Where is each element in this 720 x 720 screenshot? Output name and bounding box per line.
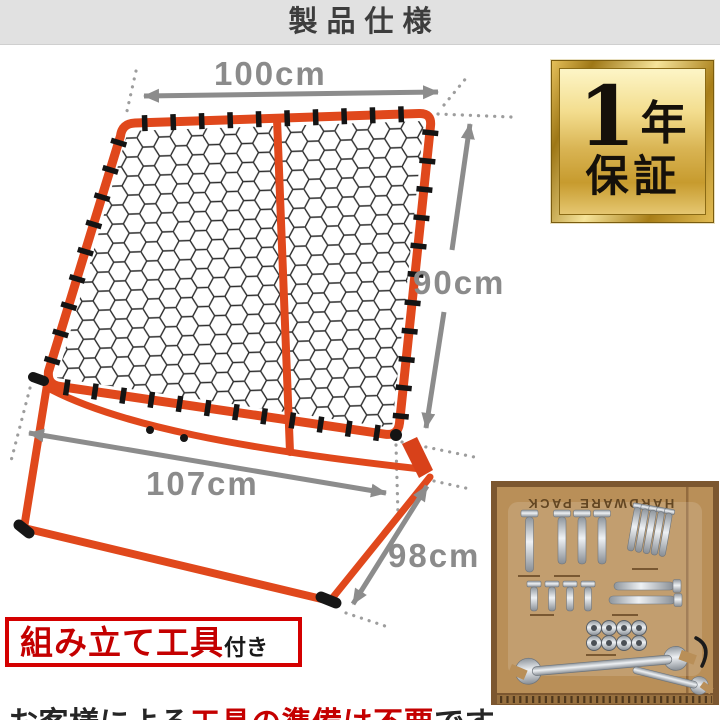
assembly-tools-text: 組み立て工具 <box>20 626 224 659</box>
arrow-height-upper <box>452 124 470 250</box>
dimension-label-depth: 98cm <box>388 539 480 572</box>
assembly-tools-suffix: 付き <box>224 637 268 659</box>
warranty-label: 保証 <box>584 156 682 199</box>
dimension-label-bottom-width: 107cm <box>146 467 259 500</box>
dimension-label-top-width: 100cm <box>214 57 327 90</box>
tools-note-sentence: お客様による工具の準備は不要です。 <box>8 706 523 720</box>
arrow-top-width <box>144 92 438 96</box>
warranty-badge-panel: 1 年 保証 <box>559 68 706 215</box>
hinge-bracket <box>402 437 433 478</box>
bolt-knob <box>146 426 154 434</box>
note-highlight: 工具の準備は不要 <box>190 707 434 720</box>
warranty-number: 1 <box>578 84 635 151</box>
warranty-unit: 年 <box>641 100 687 146</box>
corner-clamp <box>390 429 402 441</box>
warranty-badge: 1 年 保証 <box>551 60 714 223</box>
assembly-tools-box: 組み立て工具 付き <box>5 617 302 667</box>
product-spec-page: 製品仕様 <box>0 0 720 720</box>
dimension-label-height: 90cm <box>413 266 505 299</box>
note-prefix: お客様による <box>8 707 190 720</box>
warranty-badge-top-row: 1 年 <box>578 84 686 151</box>
hardware-pack-photo: HARDWARE PACK <box>490 480 720 708</box>
note-suffix: です。 <box>434 707 523 720</box>
bolt-knob <box>180 434 188 442</box>
arrow-height-lower <box>426 312 444 428</box>
